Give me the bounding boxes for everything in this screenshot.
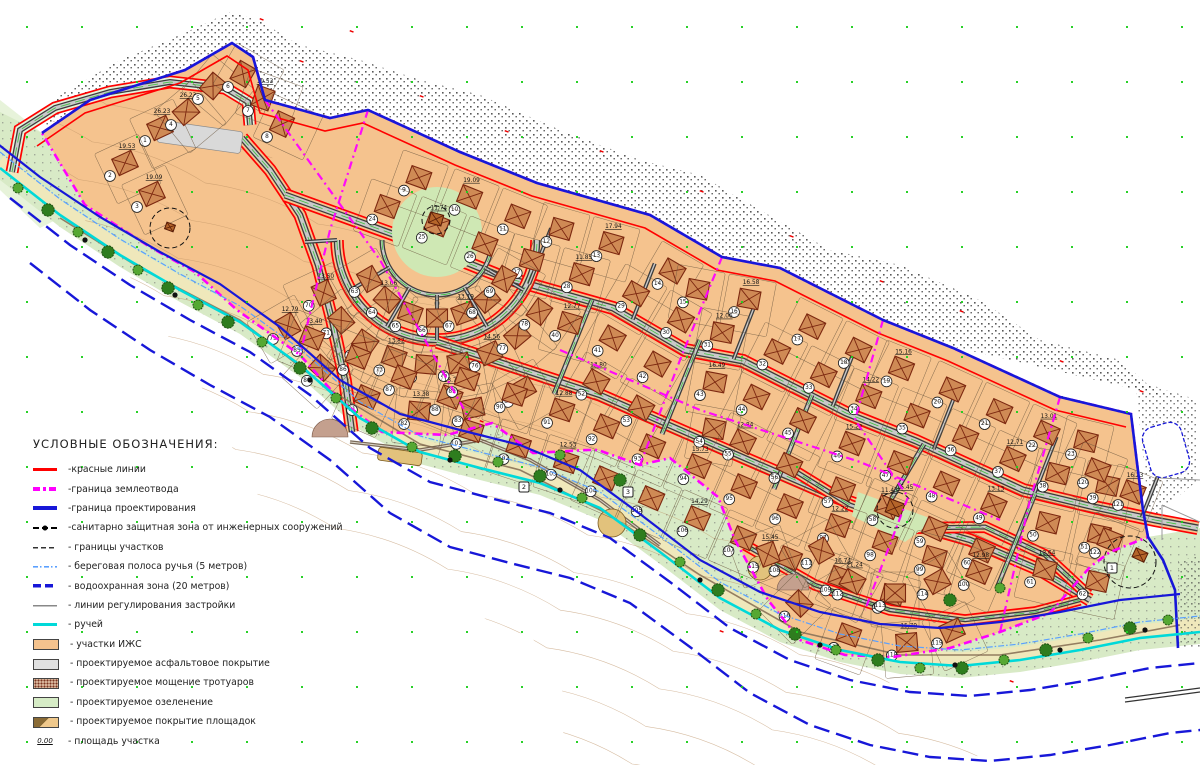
plot-number: 57 [824, 499, 832, 505]
plot-number: 3 [135, 204, 139, 210]
house-icon [703, 371, 727, 393]
plot-number: 36 [947, 447, 955, 453]
tree-icon [995, 583, 1005, 593]
legend-item-label: - проектируемое озеленение [70, 697, 213, 708]
legend-item: - границы участков [33, 538, 363, 557]
plot-number: 63 [351, 289, 359, 295]
tree-icon [222, 316, 234, 328]
legend-rows: -красные линии-граница землеотвода-грани… [33, 460, 363, 751]
legend-item-label: -красные линии [68, 464, 146, 475]
legend-swatch-asphalt-paving [33, 659, 59, 670]
legend-swatch-building-regulation-lines [33, 599, 57, 611]
legend-item: - линии регулирования застройки [33, 596, 363, 615]
plot-number: 1 [143, 138, 147, 144]
platform-marker-label: 1 [1110, 564, 1114, 572]
plot-number: 49 [975, 515, 983, 521]
legend-swatch-stream [33, 619, 57, 631]
plot-number: 100 [958, 582, 969, 588]
plot-area-label: 19.53 [119, 144, 136, 150]
tree-icon [614, 474, 626, 486]
legend-swatch-water-protection-zone [33, 580, 57, 592]
tree-icon [1163, 615, 1173, 625]
tree-icon [1040, 644, 1052, 656]
tree-icon [999, 655, 1009, 665]
plot-number: 24 [368, 217, 376, 223]
plot-number: 10 [451, 207, 459, 213]
plot-number: 15 [679, 299, 687, 305]
plot-area-label: 19.09 [463, 178, 480, 184]
plot-number: 8 [265, 134, 269, 140]
plot-number: 103 [546, 472, 557, 478]
legend: УСЛОВНЫЕ ОБОЗНАЧЕНИЯ: -красные линии-гра… [33, 437, 363, 751]
plot-number: 77 [499, 346, 507, 352]
shrub-icon [447, 457, 452, 462]
shrub-icon [172, 292, 177, 297]
legend-swatch-land-allotment-boundary [33, 483, 57, 495]
plot-area-label: 12.22 [832, 506, 849, 512]
plot-number: 86 [339, 367, 347, 373]
plot-area-label: 15.45 [762, 535, 779, 541]
tree-icon [1083, 633, 1093, 643]
plot-number: 107 [723, 548, 734, 554]
legend-item: - береговая полоса ручья (5 метров) [33, 557, 363, 576]
plot-area-label: 16.23 [1127, 473, 1144, 479]
legend-item: - ручей [33, 615, 363, 634]
legend-swatch-greenery [33, 697, 59, 708]
plot-number: 43 [696, 392, 704, 398]
legend-item-label: - участки ИЖС [70, 639, 142, 650]
legend-item: - водоохранная зона (20 метров) [33, 576, 363, 595]
tree-icon [193, 300, 203, 310]
house-icon [896, 633, 918, 653]
plot-number: 13 [593, 253, 601, 259]
plot-number: 25 [418, 235, 426, 241]
legend-item: - проектируемое покрытие площадок [33, 712, 363, 731]
plot-area-label: 13.38 [413, 392, 430, 398]
plot-number: 119 [932, 640, 943, 646]
site-plan: 126.23219.53319.09426.2356719.53891019.0… [0, 0, 1200, 765]
house-icon [885, 584, 906, 602]
plot-number: 4 [169, 122, 173, 128]
plot-area-label: 21.24 [846, 563, 863, 569]
legend-swatch-stream-shore-strip [33, 561, 57, 573]
tree-icon [331, 393, 341, 403]
plot-area-label: 16.58 [743, 280, 760, 286]
plot-number: 12 [543, 239, 551, 245]
tree-icon [366, 422, 378, 434]
plot-area-label: 16.49 [709, 363, 726, 369]
tree-icon [956, 662, 968, 674]
legend-item: -красные линии [33, 460, 363, 479]
plot-area-label: 12.77 [564, 304, 581, 310]
legend-swatch-plot-boundaries [33, 541, 57, 553]
tree-icon [42, 204, 54, 216]
legend-item-label: - водоохранная зона (20 метров) [68, 581, 229, 592]
plot-number: 33 [805, 385, 813, 391]
legend-item: - участки ИЖС [33, 635, 363, 654]
plot-number: 32 [759, 361, 767, 367]
tree-icon [102, 246, 114, 258]
tree-icon [751, 609, 761, 619]
plot-number: 87 [385, 387, 393, 393]
plot-number: 37 [994, 469, 1002, 475]
legend-item-label: - береговая полоса ручья (5 метров) [68, 561, 247, 572]
platform-marker-label: 3 [626, 488, 630, 496]
plot-number: 68 [468, 310, 476, 316]
plot-number: 2 [108, 173, 112, 179]
tree-icon [493, 457, 503, 467]
plot-number: 120 [1077, 480, 1088, 486]
plot-area-label: 12.98 [972, 553, 989, 559]
legend-item-label: -граница землеотвода [68, 484, 179, 495]
plot-area-label: 12.88 [556, 391, 573, 397]
plot-number: 7 [246, 108, 250, 114]
plot-number: 90 [496, 404, 504, 410]
plot-number: 113 [874, 603, 885, 609]
plot-number: 59 [916, 539, 924, 545]
legend-item-label: - площадь участка [68, 736, 160, 747]
plot-number: 112 [832, 592, 843, 598]
plot-area-label: 13.82 [388, 338, 405, 344]
tree-icon [831, 645, 841, 655]
plot-area-label: 14.22 [863, 377, 880, 383]
plot-number: 69 [486, 289, 494, 295]
plot-number: 92 [588, 436, 596, 442]
legend-item-label: - границы участков [68, 542, 164, 553]
plot-number: 40 [551, 333, 559, 339]
plot-number: 39 [1089, 495, 1097, 501]
tree-icon [915, 663, 925, 673]
plot-area-label: 12.71 [1007, 440, 1024, 446]
tree-icon [872, 654, 884, 666]
legend-swatch-plot-area: 0.00 [33, 737, 57, 745]
plot-number: 11 [499, 226, 507, 232]
plot-number: 96 [771, 516, 779, 522]
plot-area-label: 12.79 [282, 307, 299, 313]
legend-item-label: - ручей [68, 619, 103, 630]
legend-item: -граница землеотвода [33, 479, 363, 498]
plot-number: 61 [1026, 579, 1034, 585]
tree-icon [534, 470, 546, 482]
tree-icon [789, 628, 801, 640]
plot-area-label: 17.94 [605, 224, 622, 230]
legend-swatch-red-lines [33, 464, 57, 476]
shrub-icon [952, 662, 957, 667]
shrub-icon [307, 377, 312, 382]
plot-area-label: 13.06 [381, 281, 398, 287]
tree-icon [73, 227, 83, 237]
plot-number: 26 [466, 254, 474, 260]
legend-item: - проектируемое озеленение [33, 693, 363, 712]
legend-item: -граница проектирования [33, 499, 363, 518]
legend-item-label: - проектируемое асфальтовое покрытие [70, 658, 270, 669]
tree-icon [1124, 622, 1136, 634]
plot-number: 95 [726, 496, 734, 502]
tree-icon [13, 183, 23, 193]
plot-area-label: 12.64 [1039, 550, 1056, 556]
tree-icon [944, 594, 956, 606]
shrub-icon [82, 237, 87, 242]
plot-area-label: 13.50 [317, 274, 334, 280]
plot-number: 30 [662, 330, 670, 336]
plot-number: 35 [898, 426, 906, 432]
plot-area-label: 19.09 [146, 175, 163, 181]
plot-area-label: 15.73 [692, 447, 709, 453]
legend-item: - проектируемое мощение тротуаров [33, 673, 363, 692]
tree-icon [162, 282, 174, 294]
plot-number: 5 [196, 96, 200, 102]
legend-item-label: - линии регулирования застройки [68, 600, 235, 611]
plot-number: 67 [445, 323, 453, 329]
shrub-icon [557, 487, 562, 492]
legend-item-label: -граница проектирования [68, 503, 196, 514]
shrub-icon [817, 642, 822, 647]
plot-number: 114 [917, 592, 928, 598]
house-icon [737, 288, 761, 310]
shrub-icon [697, 577, 702, 582]
plot-number: 122 [1089, 550, 1100, 556]
shrub-icon [1057, 647, 1062, 652]
plot-number: 41 [594, 348, 602, 354]
tree-icon [257, 337, 267, 347]
legend-item-label: -санитарно защитная зона от инженерных с… [68, 522, 343, 533]
plot-number: 121 [1112, 502, 1123, 508]
tree-icon [634, 529, 646, 541]
plot-number: 6 [226, 84, 230, 90]
plot-number: 104 [585, 488, 596, 494]
house-icon [710, 322, 734, 344]
plot-number: 83 [454, 418, 462, 424]
plot-number: 52 [578, 392, 586, 398]
plot-number: 111 [801, 561, 812, 567]
plot-area-label: 12.06 [716, 314, 733, 320]
legend-item-label: - проектируемое мощение тротуаров [70, 677, 254, 688]
plot-number: 108 [769, 568, 780, 574]
legend-item: 0.00- площадь участка [33, 731, 363, 750]
plot-number: 48 [928, 494, 936, 500]
legend-item: -санитарно защитная зона от инженерных с… [33, 518, 363, 537]
plot-area-label: 11.85 [575, 255, 592, 261]
plot-area-label: 13.13 [988, 486, 1005, 492]
legend-swatch-sanitary-zone [33, 522, 57, 534]
plot-number: 76 [471, 363, 479, 369]
plot-number: 94 [680, 476, 688, 482]
tree-icon [407, 442, 417, 452]
plot-area-label: 11.43 [881, 488, 898, 494]
tree-icon [675, 557, 685, 567]
plot-number: 31 [704, 343, 712, 349]
platform-marker-label: 2 [522, 483, 526, 491]
tree-icon [712, 584, 724, 596]
plot-number: 78 [521, 322, 529, 328]
plot-number: 53 [623, 418, 631, 424]
shrub-icon [1142, 627, 1147, 632]
plot-number: 106 [677, 528, 688, 534]
tree-icon [555, 450, 565, 460]
plot-number: 98 [866, 552, 874, 558]
tree-icon [133, 265, 143, 275]
plot-area-label: 14.29 [691, 499, 708, 505]
plot-number: 109 [820, 587, 831, 593]
plot-area-label: 12.53 [560, 443, 577, 449]
plot-number: 28 [563, 284, 571, 290]
legend-item: - проектируемое асфальтовое покрытие [33, 654, 363, 673]
tree-icon [577, 493, 587, 503]
house-icon [1085, 570, 1109, 592]
plot-number: 50 [1029, 533, 1037, 539]
plot-number: 91 [543, 420, 551, 426]
plot-number: 45 [784, 430, 792, 436]
legend-swatch-playground-surface [33, 717, 59, 728]
legend-swatch-izhs-plots [33, 639, 59, 650]
plot-number: 62 [1079, 591, 1087, 597]
legend-swatch-sidewalk-paving [33, 678, 59, 689]
legend-title: УСЛОВНЫЕ ОБОЗНАЧЕНИЯ: [33, 437, 363, 451]
plot-number: 42 [639, 374, 647, 380]
legend-item-label: - проектируемое покрытие площадок [70, 716, 256, 727]
tree-icon [294, 362, 306, 374]
plot-number: 58 [869, 517, 877, 523]
plot-number: 88 [431, 407, 439, 413]
plot-number: 64 [368, 310, 376, 316]
plot-number: 19 [883, 378, 891, 384]
plot-number: 65 [392, 323, 400, 329]
legend-swatch-design-boundary [33, 502, 57, 514]
plot-area-label: 15.16 [895, 349, 912, 355]
plot-number: 38 [1039, 484, 1047, 490]
plot-number: 29 [617, 304, 625, 310]
